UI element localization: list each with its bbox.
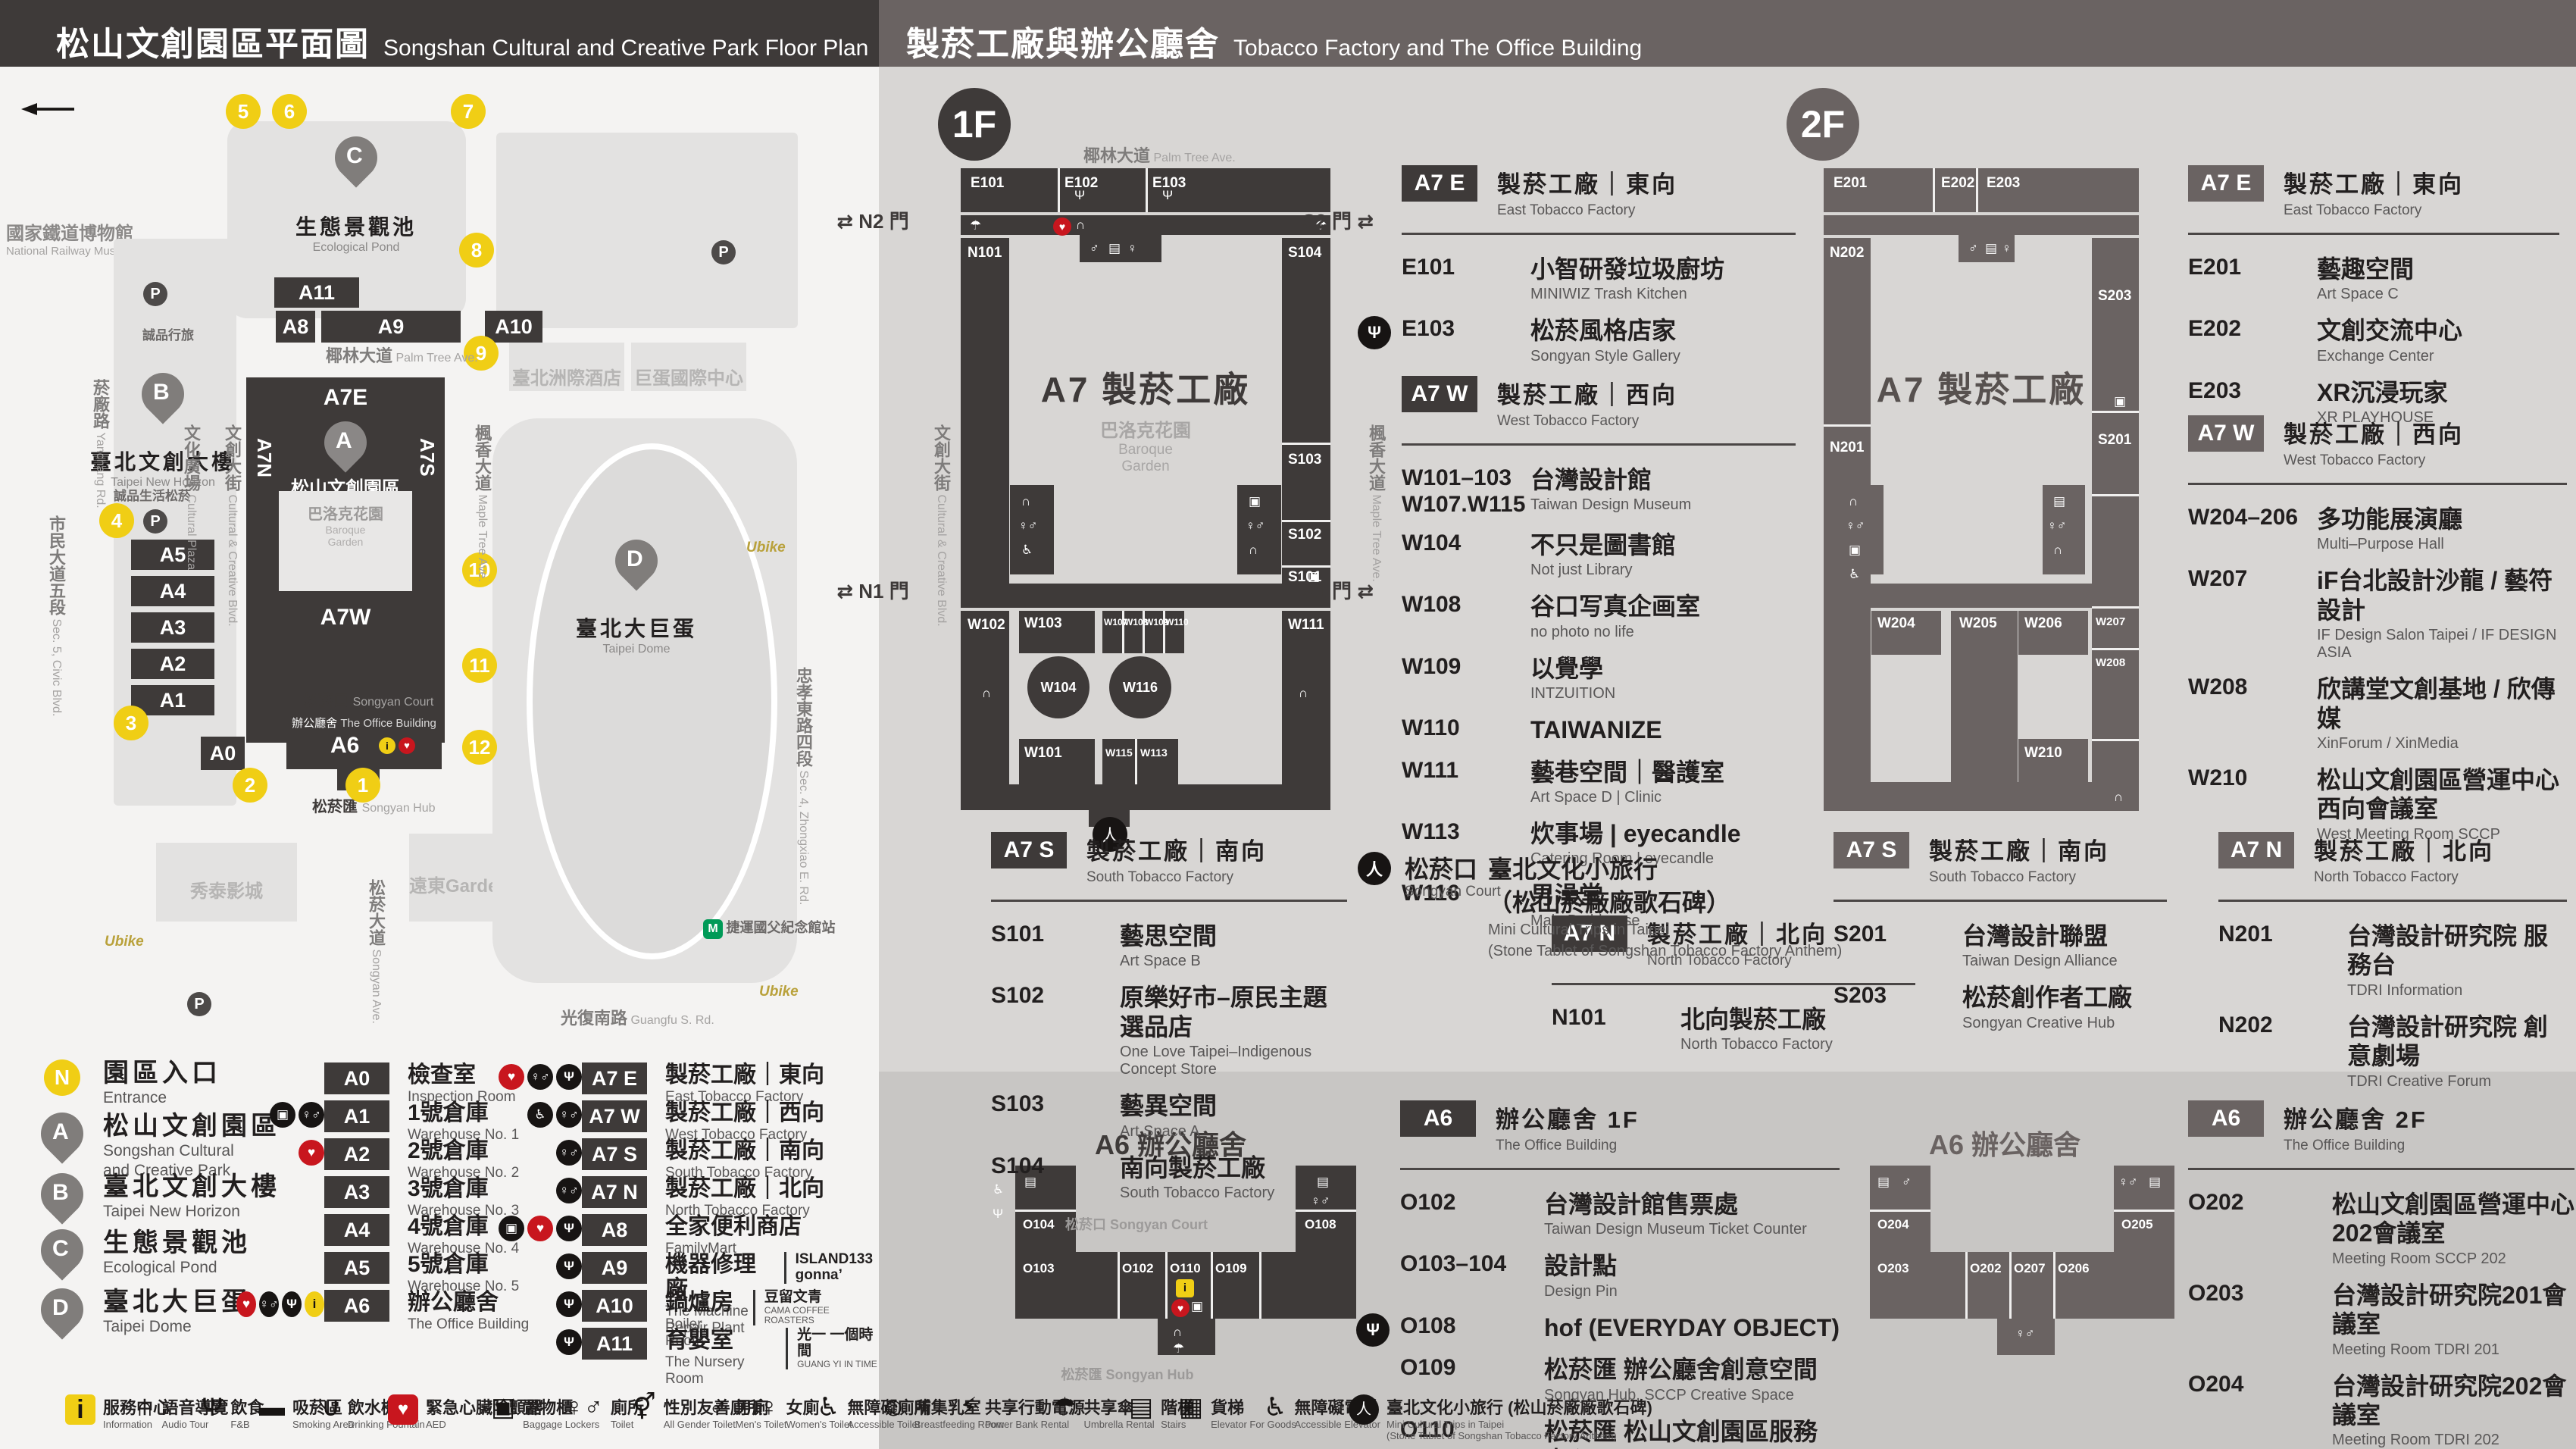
directory-entry-W204206: W204–206多功能展演廳Multi–Purpose Hall: [2188, 505, 2567, 553]
entry-text: 原樂好市–原民主題選品店One Love Taipei–Indigenous C…: [1120, 983, 1347, 1078]
entry-code: O202: [2188, 1190, 2332, 1268]
entry-code: E201: [2188, 255, 2317, 303]
directory-f2_e-header: A7 E製菸工廠｜東向East Tobacco Factory: [2188, 165, 2559, 219]
directory-f1_w-title-zh: 製菸工廠｜西向: [1497, 376, 1677, 410]
fnb-icon: Ψ: [1358, 316, 1391, 349]
entry-code: S104: [991, 1153, 1120, 1202]
fnb-icon: Ψ: [1356, 1313, 1390, 1347]
directory-f2_s-divider: [1834, 900, 2167, 902]
entry-en: Songyan Style Gallery: [1530, 348, 1680, 365]
entry-code: W110: [1402, 715, 1530, 744]
directory-f1_w-code: A7 W: [1402, 376, 1477, 412]
entry-en: Not just Library: [1530, 562, 1676, 579]
umbrella-icon: ☂: [1053, 1394, 1076, 1420]
icon-legend-strip: i服務中心Information∩語音導覽Audio TourΨ飲食F&B▬吸菸…: [0, 1384, 2576, 1449]
aed-icon: ♥: [388, 1394, 418, 1425]
directory-f1_w-divider: [1402, 443, 1796, 446]
directory-entry-E202: E202文創交流中心Exchange Center: [2188, 316, 2559, 365]
entry-code: W207: [2188, 566, 2317, 662]
entry-en: IF Design Salon Taipei / IF DESIGN ASIA: [2317, 627, 2567, 662]
directory-entry-S203: S203松菸創作者工廠Songyan Creative Hub: [1834, 983, 2167, 1031]
entry-zh: 松山文創園區營運中心202會議室: [2332, 1190, 2574, 1248]
directory-f1_w-header: A7 W製菸工廠｜西向West Tobacco Factory: [1402, 376, 1796, 430]
directory-f2_s-title-en: South Tobacco Factory: [1929, 869, 2109, 886]
directory-entry-W208: W208欣講堂文創基地 / 欣傳媒XinForum / XinMedia: [2188, 674, 2567, 753]
directory-f2_e-title-zh: 製菸工廠｜東向: [2284, 165, 2464, 199]
entry-en: INTZUITION: [1530, 685, 1615, 703]
entry-code: W111: [1402, 758, 1530, 806]
directory-a6_1f-divider: [1400, 1168, 1840, 1170]
directory-a6_2f-title-zh: 辦公廳舍 2F: [2284, 1100, 2428, 1134]
directory-f1_e: A7 E製菸工廠｜東向East Tobacco FactoryE101小智研發垃…: [1402, 165, 1796, 378]
entry-icon-wrap: Ψ: [1356, 1313, 1390, 1347]
directory-entry-E101: E101小智研發垃圾廚坊MINIWIZ Trash Kitchen: [1402, 255, 1796, 303]
entry-en: MINIWIZ Trash Kitchen: [1530, 286, 1724, 303]
directory-entry-E201: E201藝趣空間Art Space C: [2188, 255, 2559, 303]
entry-code: N101: [1552, 1005, 1680, 1053]
entry-en: Taiwan Design Museum Ticket Counter: [1544, 1221, 1807, 1238]
directory-entry-S103: S103藝異空間Art Space A: [991, 1091, 1347, 1140]
breastfeeding-icon: ☺: [880, 1394, 907, 1420]
directory-f2_w-title: 製菸工廠｜西向West Tobacco Factory: [2284, 415, 2464, 469]
entry-zh: 松菸匯 辦公廳舍創意空間: [1544, 1355, 1818, 1384]
entry-text: 台灣設計研究院 創意劇場TDRI Creative Forum: [2347, 1012, 2567, 1091]
directory-f1_e-divider: [1402, 233, 1796, 235]
songyan-court-line2: （松山菸廠廠歌石碑）: [1488, 884, 1730, 919]
directory-entry-S104: S104南向製菸工廠South Tobacco Factory: [991, 1153, 1347, 1202]
directory-f1_s-title-zh: 製菸工廠｜南向: [1086, 832, 1267, 866]
entry-en: XinForum / XinMedia: [2317, 735, 2567, 753]
entry-zh: 台灣設計研究院 創意劇場: [2347, 1012, 2567, 1071]
songyan-court-line1: 臺北文化小旅行: [1488, 850, 1658, 885]
goods-icon: ▦: [1179, 1394, 1203, 1420]
directory-entry-W110: W110TAIWANIZE: [1402, 715, 1796, 744]
entry-en: Art Space B: [1120, 953, 1217, 970]
entry-zh: 藝思空間: [1120, 922, 1217, 950]
entry-zh: 北向製菸工廠: [1680, 1005, 1833, 1034]
directory-f2_w-title-en: West Tobacco Factory: [2284, 452, 2464, 469]
accessible-icon: ♿: [817, 1394, 839, 1420]
entry-code: N202: [2218, 1012, 2347, 1091]
entry-code: W104: [1402, 530, 1530, 579]
strip-en2: (Stone Tablet of Songshan Tobacco Factor…: [1386, 1430, 1652, 1441]
entry-text: 南向製菸工廠South Tobacco Factory: [1120, 1153, 1274, 1202]
directory-entry-W104: W104不只是圖書館Not just Library: [1402, 530, 1796, 579]
entry-text: hof (EVERYDAY OBJECT): [1544, 1313, 1840, 1342]
directory-f1_e-code: A7 E: [1402, 165, 1477, 202]
songyan-court-zh: 松菸口: [1405, 850, 1477, 885]
entry-en: Art Space A: [1120, 1123, 1217, 1141]
entry-text: 藝異空間Art Space A: [1120, 1091, 1217, 1140]
allgender-icon: ⚥: [633, 1394, 656, 1420]
directory-f2_n-title-zh: 製菸工廠｜北向: [2314, 832, 2494, 866]
entry-zh: 藝巷空間｜醫護室: [1530, 758, 1724, 787]
smoking-icon: ▬: [259, 1394, 285, 1420]
entry-text: 多功能展演廳Multi–Purpose Hall: [2317, 505, 2462, 553]
minitrip-icon: 人: [1349, 1394, 1379, 1425]
entry-zh: 以覺學: [1530, 654, 1615, 683]
directory-f1_s-title: 製菸工廠｜南向South Tobacco Factory: [1086, 832, 1267, 886]
directory-entry-S201: S201台灣設計聯盟Taiwan Design Alliance: [1834, 922, 2167, 970]
entry-text: 北向製菸工廠North Tobacco Factory: [1680, 1005, 1833, 1053]
directory-entry-O103104: O103–104設計點Design Pin: [1400, 1251, 1840, 1300]
directory-entry-W111: W111藝巷空間｜醫護室Art Space D | Clinic: [1402, 758, 1796, 806]
entry-code: O108: [1400, 1313, 1544, 1342]
directory-entry-W108: W108谷口写真企画室no photo no life: [1402, 592, 1796, 640]
entry-text: 藝巷空間｜醫護室Art Space D | Clinic: [1530, 758, 1724, 806]
entry-text: 台灣設計聯盟Taiwan Design Alliance: [1962, 922, 2118, 970]
directory-f2_w-header: A7 W製菸工廠｜西向West Tobacco Factory: [2188, 415, 2567, 469]
directory-a6_1f-header: A6辦公廳舍 1FThe Office Building: [1400, 1100, 1840, 1154]
entry-zh: 多功能展演廳: [2317, 505, 2462, 534]
directory-f2_s-title: 製菸工廠｜南向South Tobacco Factory: [1929, 832, 2109, 886]
entry-code: E101: [1402, 255, 1530, 303]
directory-a6_2f-code: A6: [2188, 1100, 2264, 1137]
strip-item-fnb: Ψ飲食F&B: [202, 1394, 264, 1430]
fnb-icon: Ψ: [202, 1394, 223, 1420]
directory-f2_n-header: A7 N製菸工廠｜北向North Tobacco Factory: [2218, 832, 2567, 886]
entry-zh: 松菸創作者工廠: [1962, 983, 2132, 1012]
directory-f1_s-title-en: South Tobacco Factory: [1086, 869, 1267, 886]
directories: A7 E製菸工廠｜東向East Tobacco FactoryE101小智研發垃…: [0, 0, 2576, 1449]
entry-code: W109: [1402, 654, 1530, 703]
directory-a6_2f-title-en: The Office Building: [2284, 1138, 2428, 1154]
strip-item-minitrip: 人臺北文化小旅行 (松山菸廠廠歌石碑)Mini Cultural Trips i…: [1349, 1394, 1652, 1441]
entry-text: 欣講堂文創基地 / 欣傳媒XinForum / XinMedia: [2317, 674, 2567, 753]
entry-text: 藝思空間Art Space B: [1120, 922, 1217, 970]
entry-text: 台灣設計研究院 服務台TDRI Information: [2347, 922, 2567, 1000]
entry-zh: TAIWANIZE: [1530, 715, 1662, 744]
entry-zh: iF台北設計沙龍 / 藝符設計: [2317, 566, 2567, 624]
directory-f1_s-divider: [991, 900, 1347, 902]
entry-en: Exchange Center: [2317, 348, 2462, 365]
directory-entry-O108: ΨO108hof (EVERYDAY OBJECT): [1400, 1313, 1840, 1342]
directory-a6_1f-title: 辦公廳舍 1FThe Office Building: [1496, 1100, 1640, 1154]
directory-f1_s-code: A7 S: [991, 832, 1067, 868]
entry-en: TDRI Information: [2347, 982, 2567, 1000]
entry-text: 不只是圖書館Not just Library: [1530, 530, 1676, 579]
directory-entry-S101: S101藝思空間Art Space B: [991, 922, 1347, 970]
directory-f2_e-title: 製菸工廠｜東向East Tobacco Factory: [2284, 165, 2464, 219]
entry-zh: 藝異空間: [1120, 1091, 1217, 1120]
directory-f1_w-title: 製菸工廠｜西向West Tobacco Factory: [1497, 376, 1677, 430]
entry-zh: 谷口写真企画室: [1530, 592, 1700, 621]
entry-code: W101–103W107.W115: [1402, 465, 1530, 518]
entry-zh: 藝趣空間: [2317, 255, 2414, 283]
entry-en: Songyan Creative Hub: [1962, 1015, 2132, 1032]
entry-text: 設計點Design Pin: [1544, 1251, 1618, 1300]
directory-a6_1f-code: A6: [1400, 1100, 1476, 1137]
entry-code: N201: [2218, 922, 2347, 1000]
entry-en: TDRI Creative Forum: [2347, 1073, 2567, 1091]
directory-f2_w: A7 W製菸工廠｜西向West Tobacco FactoryW204–206多…: [2188, 415, 2567, 856]
directory-a6_2f-header: A6辦公廳舍 2FThe Office Building: [2188, 1100, 2574, 1154]
songyan-court-block-icon: 人: [1358, 852, 1391, 885]
entry-zh: 台灣設計聯盟: [1962, 922, 2118, 950]
entry-code: S203: [1834, 983, 1962, 1031]
directory-f1_e-title: 製菸工廠｜東向East Tobacco Factory: [1497, 165, 1677, 219]
directory-f2_s-code: A7 S: [1834, 832, 1909, 868]
directory-entry-O202: O202松山文創園區營運中心202會議室Meeting Room SCCP 20…: [2188, 1190, 2574, 1268]
entry-en: South Tobacco Factory: [1120, 1185, 1274, 1202]
entry-zh: 台灣設計研究院 服務台: [2347, 922, 2567, 980]
songyan-court-en: Songyan Court: [1405, 884, 1501, 900]
directory-entry-O102: O102台灣設計館售票處Taiwan Design Museum Ticket …: [1400, 1190, 1840, 1238]
entry-code: O203: [2188, 1281, 2332, 1359]
directory-f2_e-title-en: East Tobacco Factory: [2284, 202, 2464, 219]
entry-zh2: 西向會議室: [2317, 794, 2559, 823]
entry-code: W204–206: [2188, 505, 2317, 553]
entry-en: Art Space D | Clinic: [1530, 789, 1724, 806]
entry-en: Taiwan Design Alliance: [1962, 953, 2118, 970]
entry-icon-wrap: Ψ: [1358, 316, 1391, 349]
entry-text: 松山文創園區營運中心202會議室Meeting Room SCCP 202: [2332, 1190, 2574, 1268]
entry-en: Taiwan Design Museum: [1530, 496, 1691, 514]
toilet-icon: ♀♂: [564, 1394, 603, 1420]
directory-a6_1f-title-zh: 辦公廳舍 1F: [1496, 1100, 1640, 1134]
entry-zh: 炊事場 | eyecandle: [1530, 819, 1741, 848]
entry-zh: hof (EVERYDAY OBJECT): [1544, 1313, 1840, 1342]
audio-icon: ∩: [136, 1394, 154, 1420]
directory-a6_2f-title: 辦公廳舍 2FThe Office Building: [2284, 1100, 2428, 1154]
directory-f2_s: A7 S製菸工廠｜南向South Tobacco FactoryS201台灣設計…: [1834, 832, 2167, 1045]
entry-code: W108: [1402, 592, 1530, 640]
directory-f2_w-divider: [2188, 483, 2567, 485]
entry-text: 以覺學INTZUITION: [1530, 654, 1615, 703]
directory-entry-S102: S102原樂好市–原民主題選品店One Love Taipei–Indigeno…: [991, 983, 1347, 1078]
directory-f2_n-title: 製菸工廠｜北向North Tobacco Factory: [2314, 832, 2494, 886]
entry-code: S101: [991, 922, 1120, 970]
directory-a6_1f-title-en: The Office Building: [1496, 1138, 1640, 1154]
entry-en: Meeting Room TDRI 201: [2332, 1341, 2574, 1359]
womens-icon: ♀: [759, 1394, 779, 1420]
stairs-icon: ▤: [1129, 1394, 1153, 1420]
entry-code: O103–104: [1400, 1251, 1544, 1300]
entry-en: no photo no life: [1530, 624, 1700, 641]
directory-f2_n-title-en: North Tobacco Factory: [2314, 869, 2494, 886]
directory-entry-E103: ΨE103松菸風格店家Songyan Style Gallery: [1402, 316, 1796, 365]
entry-code: S201: [1834, 922, 1962, 970]
accessElev-icon: ♿: [1264, 1394, 1286, 1420]
floor-plan-poster: 松山文創園區平面圖Songshan Cultural and Creative …: [0, 0, 2576, 1449]
directory-f1_e-title-en: East Tobacco Factory: [1497, 202, 1677, 219]
entry-text: 小智研發垃圾廚坊MINIWIZ Trash Kitchen: [1530, 255, 1724, 303]
directory-f2_e: A7 E製菸工廠｜東向East Tobacco FactoryE201藝趣空間A…: [2188, 165, 2559, 440]
directory-f2_w-title-zh: 製菸工廠｜西向: [2284, 415, 2464, 449]
directory-f2_n-code: A7 N: [2218, 832, 2294, 868]
info-icon: i: [65, 1394, 95, 1425]
entry-text: 谷口写真企画室no photo no life: [1530, 592, 1700, 640]
entry-text: iF台北設計沙龍 / 藝符設計IF Design Salon Taipei / …: [2317, 566, 2567, 662]
entry-zh: 台灣設計館售票處: [1544, 1190, 1807, 1219]
locker-icon: ▣: [491, 1394, 515, 1420]
entry-code: E103: [1402, 316, 1530, 365]
entry-en: Multi–Purpose Hall: [2317, 536, 2462, 553]
entry-en: Art Space C: [2317, 286, 2414, 303]
entry-zh: 文創交流中心: [2317, 316, 2462, 345]
entry-text: 台灣設計館Taiwan Design Museum: [1530, 465, 1691, 518]
entry-text: 松菸創作者工廠Songyan Creative Hub: [1962, 983, 2132, 1031]
entry-zh: 原樂好市–原民主題選品店: [1120, 983, 1347, 1041]
strip-en: Mini Cultural Trips in Taipei: [1386, 1419, 1652, 1430]
directory-f2_s-title-zh: 製菸工廠｜南向: [1929, 832, 2109, 866]
entry-en: One Love Taipei–Indigenous Concept Store: [1120, 1044, 1347, 1078]
entry-zh: 松山文創園區營運中心: [2317, 765, 2559, 794]
directory-entry-W207: W207iF台北設計沙龍 / 藝符設計IF Design Salon Taipe…: [2188, 566, 2567, 662]
entry-text: 台灣設計館售票處Taiwan Design Museum Ticket Coun…: [1544, 1190, 1807, 1238]
strip-text: 臺北文化小旅行 (松山菸廠廠歌石碑)Mini Cultural Trips in…: [1386, 1394, 1652, 1441]
minitrip-icon: 人: [1358, 852, 1391, 885]
entry-zh: 小智研發垃圾廚坊: [1530, 255, 1724, 283]
entry-en: Meeting Room SCCP 202: [2332, 1250, 2574, 1268]
mens-icon: ♂: [708, 1394, 728, 1420]
entry-text: 台灣設計研究院201會議室Meeting Room TDRI 201: [2332, 1281, 2574, 1359]
entry-zh: 欣講堂文創基地 / 欣傳媒: [2317, 674, 2567, 733]
directory-f1_w-title-en: West Tobacco Factory: [1497, 413, 1677, 430]
directory-entry-O203: O203台灣設計研究院201會議室Meeting Room TDRI 201: [2188, 1281, 2574, 1359]
entry-en: North Tobacco Factory: [1680, 1036, 1833, 1053]
entry-zh: 松菸風格店家: [1530, 316, 1680, 345]
entry-zh: 設計點: [1544, 1251, 1618, 1280]
directory-f2_n: A7 N製菸工廠｜北向North Tobacco FactoryN201台灣設計…: [2218, 832, 2567, 1103]
directory-a6_2f-divider: [2188, 1168, 2574, 1170]
entry-text: TAIWANIZE: [1530, 715, 1662, 744]
songyan-court-en2: (Stone Tablet of Songshan Tobacco Factor…: [1488, 943, 1842, 960]
directory-f1_s-header: A7 S製菸工廠｜南向South Tobacco Factory: [991, 832, 1347, 886]
directory-f2_w-code: A7 W: [2188, 415, 2264, 452]
songyan-court-en1: Mini Cultural Trips in Taipei: [1488, 922, 1669, 939]
directory-f2_n-divider: [2218, 900, 2567, 902]
entry-code: O102: [1400, 1190, 1544, 1238]
directory-f1_e-title-zh: 製菸工廠｜東向: [1497, 165, 1677, 199]
water-icon: ∪: [321, 1394, 340, 1420]
directory-f2_e-code: A7 E: [2188, 165, 2264, 202]
entry-zh: 台灣設計研究院201會議室: [2332, 1281, 2574, 1339]
directory-entry-W101103: W101–103W107.W115台灣設計館Taiwan Design Muse…: [1402, 465, 1796, 518]
entry-zh: 台灣設計館: [1530, 465, 1691, 494]
directory-entry-N202: N202台灣設計研究院 創意劇場TDRI Creative Forum: [2218, 1012, 2567, 1091]
entry-en: Design Pin: [1544, 1283, 1618, 1300]
directory-f2_s-header: A7 S製菸工廠｜南向South Tobacco Factory: [1834, 832, 2167, 886]
entry-code: S103: [991, 1091, 1120, 1140]
directory-f1_e-header: A7 E製菸工廠｜東向East Tobacco Factory: [1402, 165, 1796, 219]
entry-zh: XR沉浸玩家: [2317, 378, 2447, 407]
directory-f2_e-divider: [2188, 233, 2559, 235]
strip-zh: 臺北文化小旅行 (松山菸廠廠歌石碑): [1386, 1394, 1652, 1419]
entry-code: E202: [2188, 316, 2317, 365]
entry-text: 文創交流中心Exchange Center: [2317, 316, 2462, 365]
entry-text: 藝趣空間Art Space C: [2317, 255, 2414, 303]
power-icon: ⚡: [959, 1394, 977, 1420]
entry-code: S102: [991, 983, 1120, 1078]
entry-zh: 南向製菸工廠: [1120, 1153, 1274, 1182]
entry-code: W208: [2188, 674, 2317, 753]
directory-f1_s: A7 S製菸工廠｜南向South Tobacco FactoryS101藝思空間…: [991, 832, 1347, 1215]
directory-entry-N201: N201台灣設計研究院 服務台TDRI Information: [2218, 922, 2567, 1000]
entry-text: 松菸風格店家Songyan Style Gallery: [1530, 316, 1680, 365]
directory-entry-W109: W109以覺學INTZUITION: [1402, 654, 1796, 703]
entry-zh: 不只是圖書館: [1530, 530, 1676, 559]
